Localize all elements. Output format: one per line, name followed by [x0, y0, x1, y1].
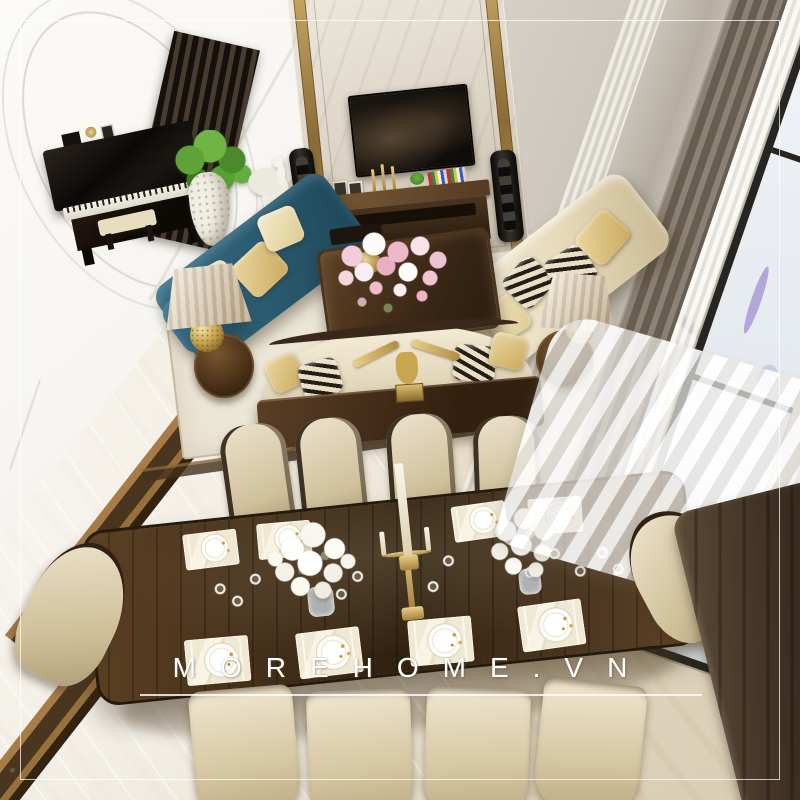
- dining-chair: [306, 688, 414, 800]
- mini-plant: [410, 172, 425, 185]
- white-candle: [379, 531, 386, 555]
- television: [348, 84, 476, 178]
- dining-chair: [188, 684, 303, 800]
- dining-chair: [423, 686, 531, 800]
- place-setting: [517, 598, 587, 652]
- interior-render-photo: MOREHOME.VN: [0, 0, 800, 800]
- bench-leg: [105, 233, 114, 250]
- speaker-drivers: [497, 158, 517, 233]
- table-clock: [84, 126, 97, 139]
- bench-leg: [145, 225, 154, 242]
- pink-flower-arrangement: [312, 222, 482, 326]
- candle-holder: [399, 554, 419, 571]
- gold-bull-sculpture: [349, 326, 464, 409]
- bull-head: [395, 351, 419, 384]
- bull-horn: [411, 338, 461, 361]
- sculpture-base: [395, 383, 424, 403]
- watermark: MOREHOME.VN: [0, 652, 800, 684]
- window-mullion-bar: [771, 147, 800, 189]
- watermark-underline: [140, 694, 702, 696]
- white-candle: [424, 527, 431, 551]
- place-setting: [182, 528, 240, 570]
- piano-leg: [81, 246, 95, 266]
- candelabra-base: [401, 606, 424, 621]
- white-flower-centerpiece: [259, 512, 373, 622]
- bull-horn: [352, 340, 400, 369]
